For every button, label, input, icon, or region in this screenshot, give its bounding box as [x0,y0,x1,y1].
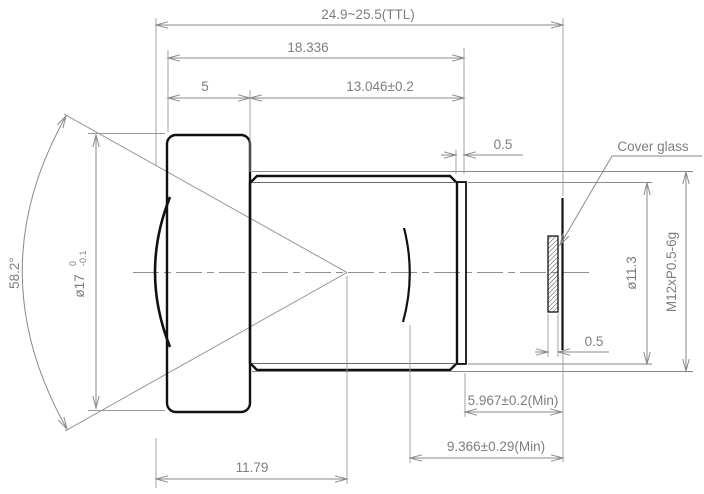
fov-angle-arc [22,116,67,429]
dim-glass-thickness: 0.5 [535,334,609,352]
front-face-to-rear-label: 18.336 [287,40,328,55]
cover-glass [548,236,558,312]
dim-rear-opening-diameter: ø11.3 [624,183,647,364]
fov-angle-label: 58.2° [7,257,22,289]
thread-spec-label: M12xP0.5-6g [664,232,679,312]
dim-vertex-to-stop: 11.79 [156,460,347,479]
dim-rear-face-to-image: 5.967±0.2(Min) [465,393,562,412]
dim-front-diameter: ø17 0 -0.1 [68,135,96,408]
rear-lens-surface [403,228,410,322]
dim-ttl: 24.9~25.5(TTL) [156,7,563,25]
dim-thread-spec: M12xP0.5-6g [664,172,686,371]
dim-flange-width: 5 [168,79,250,98]
front-diameter-tol-upper: 0 [68,261,78,266]
barrel-length-label: 13.046±0.2 [346,79,413,94]
glass-thickness-label: 0.5 [585,334,604,349]
flange-width-label: 5 [201,79,209,94]
lens-barrel-body [250,176,457,370]
drawing-canvas: 58.2° 24.9~25.5(TTL) [0,0,704,494]
dim-front-face-to-rear: 18.336 [168,40,464,58]
vertex-to-stop-label: 11.79 [236,460,269,475]
front-diameter-label: ø17 [72,274,87,297]
rear-step-label: 0.5 [494,137,513,152]
cover-glass-leader-line [560,156,702,245]
front-diameter-tol-lower: -0.1 [78,250,88,266]
cover-glass-callout: Cover glass [560,139,702,245]
rear-opening-diameter-label: ø11.3 [624,256,639,290]
dim-back-focal-distance: 9.366±0.29(Min) [410,439,563,458]
front-flange-body [167,135,250,412]
rear-face-to-image-label: 5.967±0.2(Min) [468,393,559,408]
lens-technical-drawing: 58.2° 24.9~25.5(TTL) [0,0,704,494]
cover-glass-label: Cover glass [617,139,689,154]
back-focal-distance-label: 9.366±0.29(Min) [447,439,545,454]
dim-rear-step: 0.5 [441,137,523,155]
dim-barrel-length: 13.046±0.2 [250,79,464,98]
rear-ring [457,182,466,364]
ttl-label: 24.9~25.5(TTL) [321,7,414,22]
